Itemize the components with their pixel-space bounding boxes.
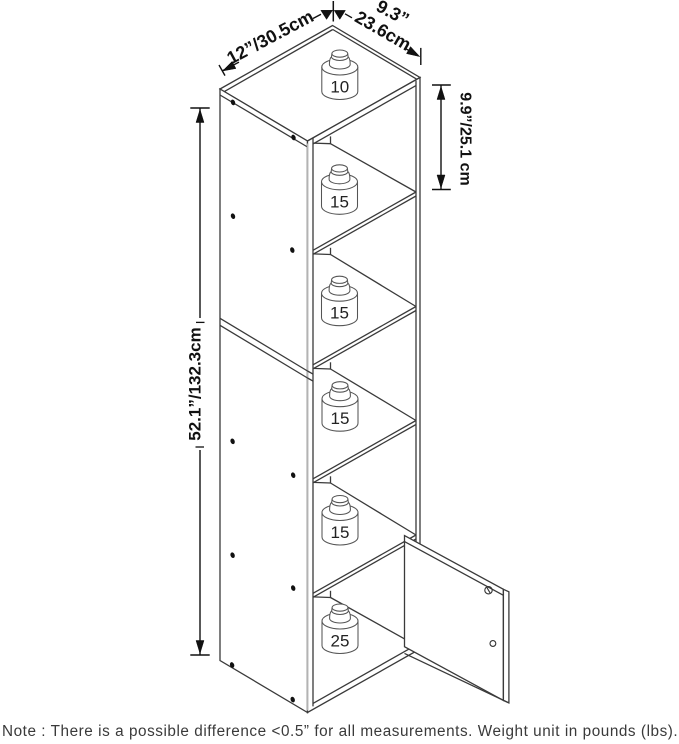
svg-text:15: 15 bbox=[330, 192, 349, 211]
svg-text:15: 15 bbox=[330, 304, 349, 323]
svg-text:9.9”/25.1 cm: 9.9”/25.1 cm bbox=[456, 92, 473, 185]
svg-text:15: 15 bbox=[331, 409, 350, 428]
svg-text:25: 25 bbox=[331, 632, 350, 651]
svg-text:52.1”/132.3cm: 52.1”/132.3cm bbox=[185, 327, 204, 440]
svg-text:10: 10 bbox=[330, 78, 349, 97]
svg-text:15: 15 bbox=[331, 523, 350, 542]
svg-text:Note : There is a possible dif: Note : There is a possible difference <0… bbox=[2, 723, 678, 740]
